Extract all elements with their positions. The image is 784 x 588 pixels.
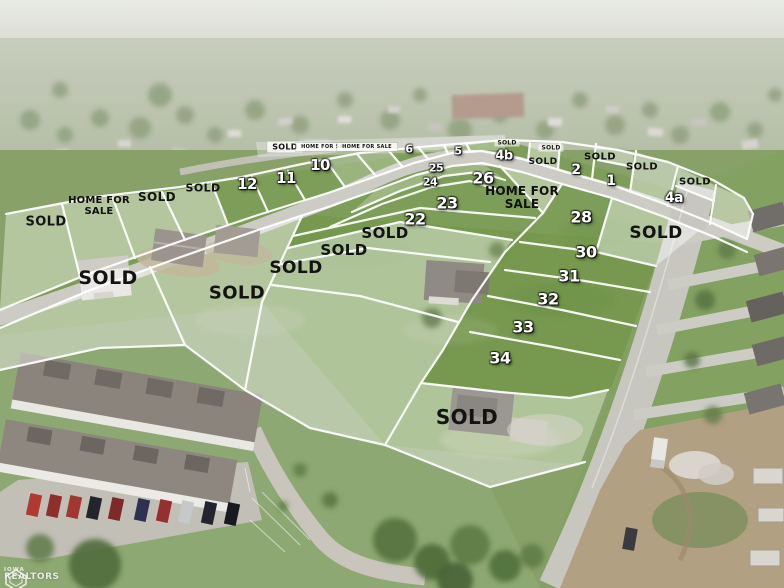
sold-label: SOLD [269,258,322,278]
lot-number-label: 11 [276,169,296,187]
lot-number-label: 2 [571,162,580,178]
lot-number-label: 34 [489,349,510,368]
sold-label: SOLD [629,223,682,243]
sold-label: SOLD [78,267,137,289]
lot-number-label: 4b [495,149,512,164]
sold-label: SOLD [584,152,616,163]
sold-label: SOLD [209,283,265,304]
sold-label: SOLD [626,162,658,173]
sold-label: SOLD [529,157,558,167]
lot-number-label: 30 [575,243,596,262]
home-for-sale-label: HOME FORSALE [485,185,559,211]
lot-number-label: 4a [665,190,683,206]
lot-number-label: 5 [454,145,461,158]
realtors-logo-icon [4,568,28,588]
lot-number-label: 12 [237,175,257,193]
aerial-lot-map: SOLDHOME FOR SALEHOME FOR SALE65SOLD4bSO… [0,0,784,588]
brand-logo: IOWA REALTORS [4,568,60,583]
sold-chip-label: SOLD [494,140,519,147]
lot-labels-layer: SOLDHOME FOR SALEHOME FOR SALE65SOLD4bSO… [0,0,784,588]
sold-label: SOLD [25,215,66,230]
lot-number-label: 6 [405,143,412,156]
sold-label: SOLD [436,405,498,429]
lot-number-label: 24 [423,176,437,189]
sold-label: SOLD [361,224,408,242]
sold-chip-label: SOLD [538,145,563,152]
home-for-sale-label: HOME FORSALE [68,196,130,218]
sold-chip-label: HOME FOR SALE [337,143,397,151]
sold-label: SOLD [320,241,367,259]
lot-number-label: 25 [429,162,443,175]
lot-number-label: 1 [606,173,615,189]
sold-label: SOLD [679,177,711,188]
sold-label: SOLD [185,182,220,195]
lot-number-label: 33 [512,318,533,337]
lot-number-label: 32 [537,290,558,309]
lot-number-label: 23 [436,194,457,213]
sold-label: SOLD [138,190,176,204]
lot-number-label: 10 [310,156,330,174]
lot-number-label: 28 [570,208,591,227]
lot-number-label: 31 [558,267,579,286]
